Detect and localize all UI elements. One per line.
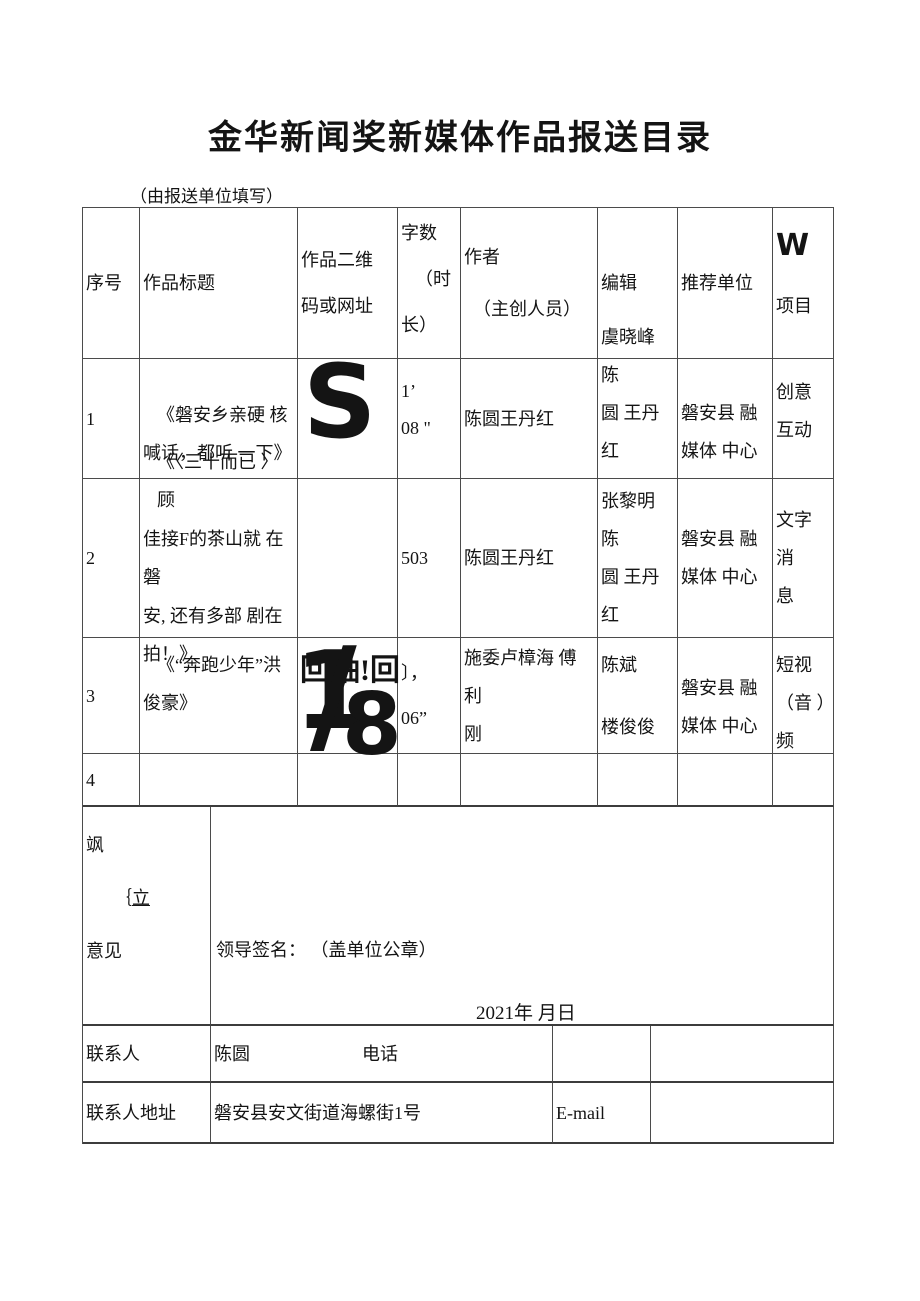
opinion-label-cell: 飒 ｛立 意见 [83, 807, 211, 1026]
row-1-index: 1 [86, 400, 136, 438]
row-2-title-cell: 《〈三十而已 〉 顾 佳接F的茶山就 在磐 安, 还有多部 剧在 拍！》 [140, 479, 298, 638]
header-index-label: 序号 [86, 264, 136, 302]
header-count-line2: （时 [401, 256, 457, 302]
row-1-count-cell: 1’ 08 " [398, 359, 461, 479]
opinion-label-line1: 飒 [86, 819, 207, 872]
header-unit: 推荐单位 [678, 208, 773, 359]
row-3-author-line2: 刚 [464, 715, 594, 753]
row-1-project-line1: 创意 [776, 373, 830, 411]
leader-signature-label: 领导签名： （盖单位公章） [216, 931, 437, 969]
row-2-title-line2: 佳接F的茶山就 在磐 [143, 520, 294, 597]
row-3-count-line2: 06” [401, 696, 457, 741]
contact-address-value-cell: 磐安县安文街道海螺街1号 [211, 1083, 553, 1144]
row-3-editor-cell: 陈斌 楼俊俊 [598, 638, 678, 754]
row-2-count: 503 [401, 539, 457, 577]
header-author-line1: 作者 [464, 231, 594, 283]
opinion-underlined-char: 立 [132, 888, 150, 908]
email-value-cell [651, 1083, 834, 1144]
header-index: 序号 [83, 208, 140, 359]
header-editor-label: 编辑 [601, 264, 674, 302]
row-4-count-cell [398, 754, 461, 807]
document-title: 金华新闻奖新媒体作品报送目录 [0, 110, 920, 159]
opinion-brace: ｛ [114, 888, 132, 908]
row-3-editor-line1: 陈斌 [601, 646, 674, 684]
row-1-unit-line2: 媒体 中心 [681, 432, 769, 470]
row-3-title-line2: 俊豪》 [143, 684, 294, 722]
row-2-title-line3: 安, 还有多部 剧在 [143, 597, 294, 636]
row-1-qr-cell: S [298, 359, 398, 479]
row-2-title-line1: 《〈三十而已 〉 顾 [143, 443, 294, 520]
row-1-editor-line2: 圆 王丹红 [601, 394, 674, 470]
row-3-count-cell: 〕， 06” [398, 638, 461, 754]
email-label: E-mail [556, 1094, 647, 1132]
row-2-qr-cell [298, 479, 398, 638]
contact-address-label: 联系人地址 [86, 1094, 207, 1132]
row-4-project-cell [773, 754, 834, 807]
contact-person-value: 陈圆 [214, 1044, 250, 1064]
document-page: 金华新闻奖新媒体作品报送目录 （由报送单位填写） 序号 作品标题 作品二维 码或… [0, 0, 920, 1301]
row-2-unit-cell: 磐安县 融 媒体 中心 [678, 479, 773, 638]
contact-row1-extra-cell [651, 1026, 834, 1083]
row-2-unit-line2: 媒体 中心 [681, 558, 769, 596]
contact-person-label-cell: 联系人 [83, 1026, 211, 1083]
row-1-editor-line1: 虞晓峰 陈 [601, 318, 674, 394]
row-2-editor-cell: 张黎明 陈 圆 王丹红 [598, 479, 678, 638]
row-4-qr-cell [298, 754, 398, 807]
header-qr-line1: 作品二维 [301, 237, 394, 283]
row-1-editor-cell: 虞晓峰 陈 圆 王丹红 [598, 359, 678, 479]
row-2-unit-line1: 磐安县 融 [681, 520, 769, 558]
row-4-author-cell [461, 754, 598, 807]
row-2-project-line1: 文字 消 [776, 501, 830, 577]
header-project-w-glyph: W [776, 216, 830, 276]
contact-person-label: 联系人 [86, 1035, 207, 1073]
submission-table: 序号 作品标题 作品二维 码或网址 字数 （时 长） 作者 （主创人员） 编辑 … [82, 207, 834, 1144]
row-2-author: 陈圆王丹红 [464, 539, 594, 577]
row-1-qr-glitch-glyph: S [301, 361, 394, 445]
opinion-label-line2: ｛立 [86, 872, 207, 925]
row-3-count-line1: 〕， [401, 651, 457, 696]
row-2-index-cell: 2 [83, 479, 140, 638]
contact-address-label-cell: 联系人地址 [83, 1083, 211, 1144]
header-count-line1: 字数 [401, 210, 457, 256]
row-3-project-line2: （音 ） [776, 684, 830, 722]
header-count: 字数 （时 长） [398, 208, 461, 359]
row-3-project-cell: 短视 （音 ） 频 [773, 638, 834, 754]
row-3-unit-cell: 磐安县 融 媒体 中心 [678, 638, 773, 754]
contact-person-value-cell: 陈圆电话 [211, 1026, 553, 1083]
row-1-count-line2: 08 " [401, 410, 457, 447]
row-3-author-line1: 施委卢樟海 傅利 [464, 639, 594, 715]
row-3-qr-cell: 回轴!回 1 / 8 [298, 638, 398, 754]
row-3-project-line1: 短视 [776, 646, 830, 684]
row-4-editor-cell [598, 754, 678, 807]
row-1-count-line1: 1’ [401, 373, 457, 410]
row-1-author-cell: 陈圆王丹红 [461, 359, 598, 479]
row-4-unit-cell [678, 754, 773, 807]
row-3-unit-line1: 磐安县 融 [681, 669, 769, 707]
row-1-project-cell: 创意 互动 [773, 359, 834, 479]
row-2-index: 2 [86, 539, 136, 577]
row-2-editor-line1: 张黎明 陈 [601, 482, 674, 558]
row-1-unit-cell: 磐安县 融 媒体 中心 [678, 359, 773, 479]
phone-label: 电话 [362, 1044, 398, 1064]
fill-in-note: （由报送单位填写） [130, 182, 283, 207]
header-qr: 作品二维 码或网址 [298, 208, 398, 359]
row-3-author-cell: 施委卢樟海 傅利 刚 [461, 638, 598, 754]
contact-phone-value-cell [553, 1026, 651, 1083]
row-2-project-cell: 文字 消 息 [773, 479, 834, 638]
row-3-title-cell: 《“奔跑少年”洪 俊豪》 [140, 638, 298, 754]
header-author-line2: （主创人员） [464, 283, 594, 335]
opinion-label-line3: 意见 [86, 925, 207, 978]
row-1-project-line2: 互动 [776, 411, 830, 449]
header-project-label: 项目 [776, 276, 830, 336]
row-4-index: 4 [86, 761, 136, 799]
header-title: 作品标题 [140, 208, 298, 359]
header-author: 作者 （主创人员） [461, 208, 598, 359]
row-3-editor-line2: 楼俊俊 [601, 708, 674, 746]
row-2-author-cell: 陈圆王丹红 [461, 479, 598, 638]
row-3-index: 3 [86, 677, 136, 715]
row-4-index-cell: 4 [83, 754, 140, 807]
header-count-line3: 长） [401, 302, 457, 348]
row-2-project-line2: 息 [776, 577, 830, 615]
header-project: W 项目 [773, 208, 834, 359]
contact-person-row: 陈圆电话 [214, 1035, 549, 1073]
row-2-editor-line2: 圆 王丹红 [601, 558, 674, 634]
row-3-title-line1: 《“奔跑少年”洪 [143, 646, 294, 684]
email-label-cell: E-mail [553, 1083, 651, 1144]
row-1-author: 陈圆王丹红 [464, 400, 594, 438]
row-2-count-cell: 503 [398, 479, 461, 638]
header-unit-label: 推荐单位 [681, 264, 769, 302]
opinion-content-cell: 领导签名： （盖单位公章） 2021年 月日 [211, 807, 834, 1026]
header-title-label: 作品标题 [143, 264, 294, 302]
row-1-index-cell: 1 [83, 359, 140, 479]
header-qr-line2: 码或网址 [301, 283, 394, 329]
row-1-unit-line1: 磐安县 融 [681, 394, 769, 432]
contact-address-value: 磐安县安文街道海螺街1号 [214, 1094, 549, 1132]
row-3-index-cell: 3 [83, 638, 140, 754]
row-1-title-line1: 《磐安乡亲硬 核 [143, 396, 294, 434]
row-3-unit-line2: 媒体 中心 [681, 707, 769, 745]
row-4-title-cell [140, 754, 298, 807]
